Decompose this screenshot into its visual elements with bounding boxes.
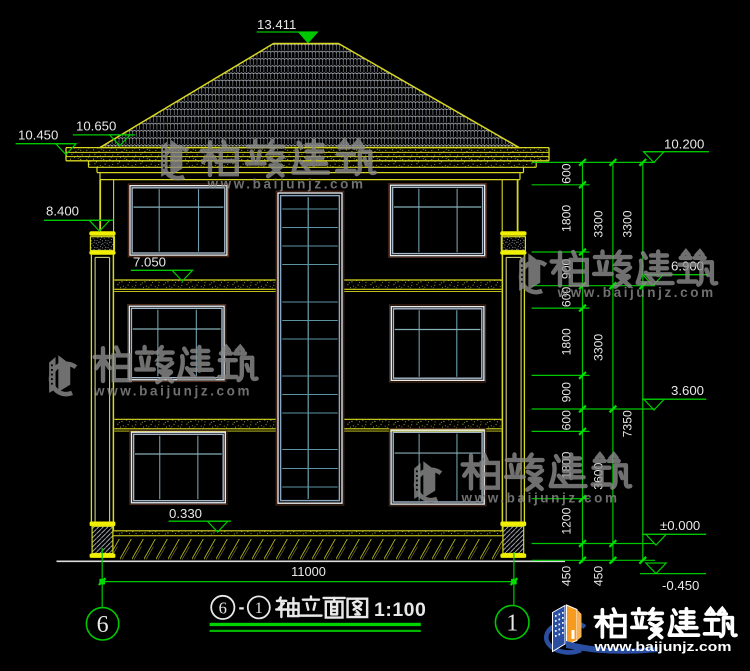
svg-text:www.baijunjz.com: www.baijunjz.com [93, 384, 252, 399]
svg-text:-: - [239, 597, 245, 617]
svg-text:7.050: 7.050 [133, 255, 166, 270]
svg-text:10.450: 10.450 [18, 128, 58, 143]
svg-text:3.600: 3.600 [671, 383, 704, 398]
svg-text:8.400: 8.400 [46, 204, 79, 219]
svg-text:1: 1 [255, 600, 263, 617]
svg-text:6: 6 [219, 598, 227, 617]
svg-text:10.200: 10.200 [664, 137, 704, 152]
svg-text:3300: 3300 [592, 334, 606, 361]
svg-text:1200: 1200 [560, 507, 574, 534]
svg-text:www.baijunjz.com: www.baijunjz.com [557, 285, 716, 300]
svg-text:900: 900 [560, 382, 574, 403]
svg-text:450: 450 [592, 566, 606, 587]
svg-text:www.baijunjz.com: www.baijunjz.com [461, 491, 620, 506]
svg-text:1:100: 1:100 [374, 599, 426, 621]
svg-text:6: 6 [97, 612, 109, 638]
svg-text:±0.000: ±0.000 [660, 518, 700, 533]
svg-text:www.baijunjz.com: www.baijunjz.com [593, 640, 731, 654]
svg-text:11000: 11000 [291, 564, 326, 579]
svg-text:1800: 1800 [560, 205, 574, 232]
svg-text:450: 450 [560, 566, 574, 587]
svg-text:10.650: 10.650 [76, 119, 116, 134]
svg-text:600: 600 [560, 410, 574, 431]
svg-text:3300: 3300 [621, 210, 635, 237]
svg-text:1800: 1800 [560, 328, 574, 355]
svg-text:1: 1 [506, 611, 518, 637]
svg-text:13.411: 13.411 [257, 17, 296, 32]
svg-text:-0.450: -0.450 [662, 578, 699, 593]
svg-text:600: 600 [560, 163, 574, 184]
svg-text:3300: 3300 [592, 210, 606, 237]
svg-text:7350: 7350 [621, 410, 635, 437]
svg-text:0.330: 0.330 [169, 506, 202, 521]
svg-text:www.baijunjz.com: www.baijunjz.com [207, 177, 366, 192]
